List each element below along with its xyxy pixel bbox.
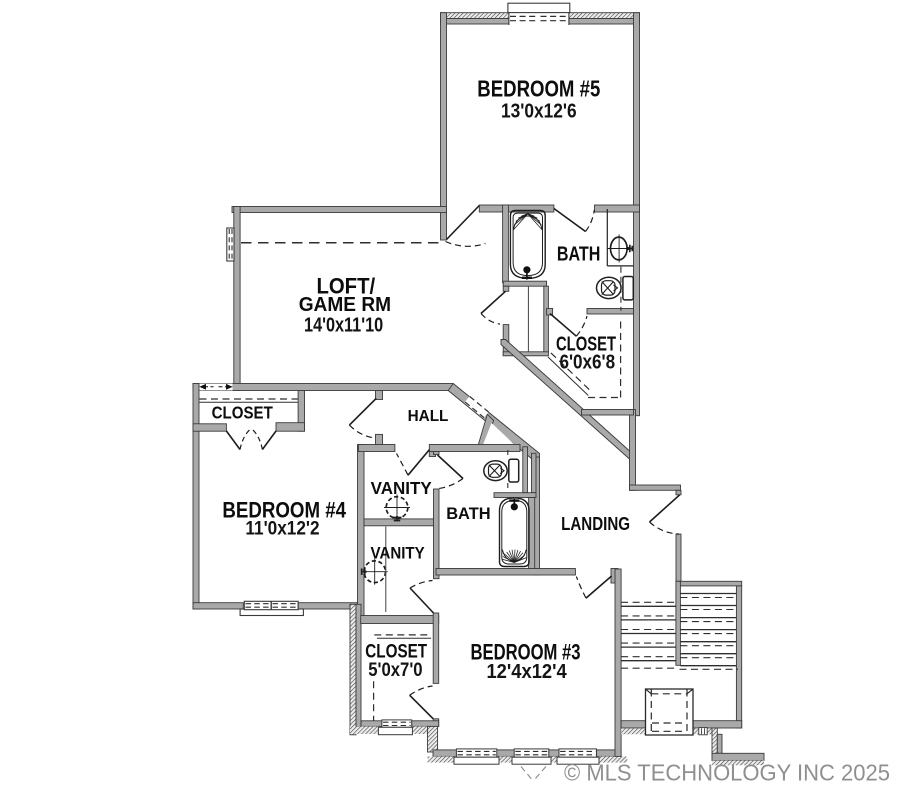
svg-text:12'4x12'4: 12'4x12'4 (486, 661, 567, 683)
svg-text:13'0x12'6: 13'0x12'6 (501, 101, 577, 123)
svg-text:BATH: BATH (446, 504, 490, 523)
svg-text:11'0x12'2: 11'0x12'2 (245, 518, 319, 539)
svg-text:BATH: BATH (557, 244, 601, 266)
svg-text:6'0x6'8: 6'0x6'8 (559, 352, 615, 374)
svg-text:VANITY: VANITY (371, 478, 432, 498)
svg-text:HALL: HALL (408, 408, 449, 425)
svg-text:5'0x7'0: 5'0x7'0 (368, 660, 422, 681)
svg-text:VANITY: VANITY (371, 544, 426, 563)
svg-text:© MLS TECHNOLOGY INC 2025: © MLS TECHNOLOGY INC 2025 (564, 760, 890, 786)
svg-text:CLOSET: CLOSET (212, 403, 273, 423)
svg-text:BEDROOM #5: BEDROOM #5 (477, 76, 600, 102)
svg-text:LANDING: LANDING (561, 513, 630, 534)
svg-text:GAME RM: GAME RM (299, 294, 391, 316)
svg-text:14'0x11'10: 14'0x11'10 (304, 315, 383, 337)
